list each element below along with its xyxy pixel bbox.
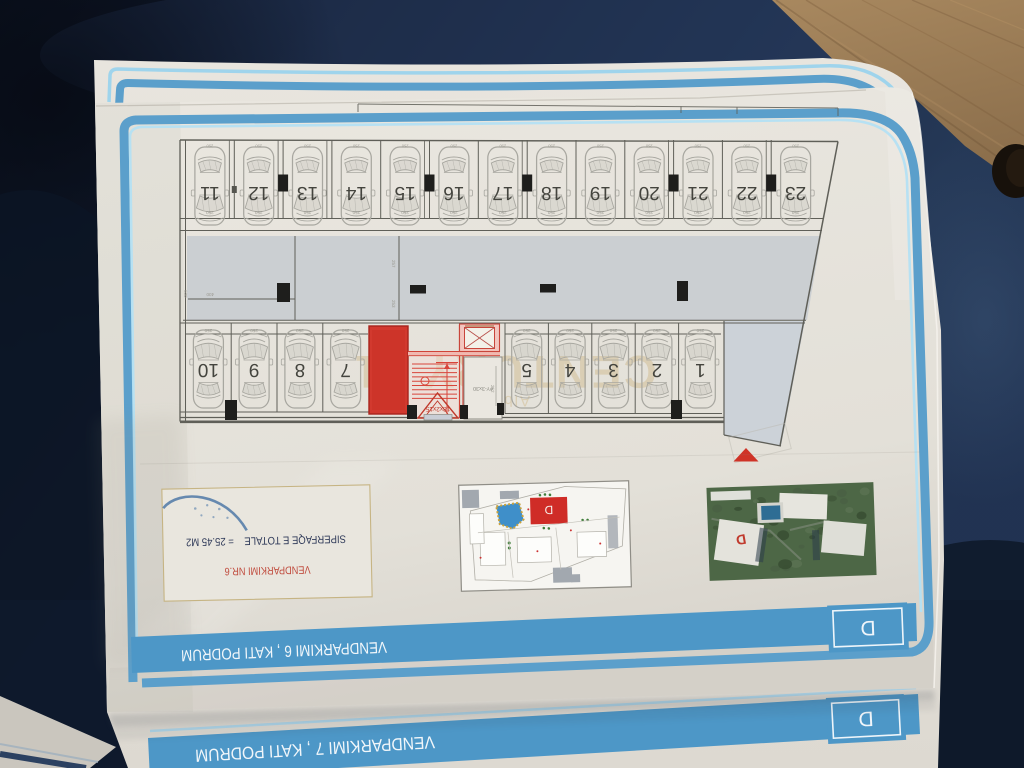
svg-text:1: 1 [695, 359, 706, 380]
svg-text:250: 250 [401, 210, 409, 215]
svg-text:250: 250 [450, 144, 457, 149]
svg-text:252: 252 [490, 385, 495, 393]
svg-text:5: 5 [521, 359, 532, 380]
svg-text:#Y-3x30: #Y-3x30 [473, 385, 493, 391]
svg-text:15: 15 [395, 182, 416, 203]
svg-text:250: 250 [694, 144, 701, 149]
svg-text:250: 250 [204, 328, 212, 333]
svg-text:8: 8 [295, 359, 306, 380]
svg-text:257: 257 [391, 260, 396, 268]
svg-text:250: 250 [645, 144, 652, 149]
svg-text:16: 16 [443, 182, 464, 203]
svg-text:250: 250 [206, 210, 214, 215]
svg-text:23: 23 [785, 182, 806, 203]
svg-text:4: 4 [564, 359, 575, 380]
svg-text:13: 13 [297, 182, 318, 203]
svg-text:14: 14 [345, 182, 367, 203]
svg-text:3: 3 [608, 359, 619, 380]
svg-text:250: 250 [352, 210, 360, 215]
svg-text:7: 7 [340, 359, 351, 380]
svg-text:250: 250 [566, 328, 574, 333]
svg-text:250: 250 [596, 210, 604, 215]
svg-text:21: 21 [687, 182, 708, 203]
svg-text:2: 2 [652, 359, 663, 380]
svg-text:18x2x15: 18x2x15 [425, 405, 450, 412]
svg-text:250: 250 [791, 210, 799, 215]
svg-text:250: 250 [694, 210, 702, 215]
svg-text:9: 9 [249, 359, 260, 380]
svg-text:12: 12 [248, 182, 269, 203]
svg-text:17: 17 [492, 182, 513, 203]
svg-text:VENDPARKIMI NR.6: VENDPARKIMI NR.6 [224, 563, 310, 577]
svg-text:250: 250 [254, 210, 262, 215]
svg-text:250: 250 [499, 210, 507, 215]
svg-text:11: 11 [200, 182, 220, 203]
svg-text:600: 600 [183, 290, 188, 298]
svg-text:250: 250 [547, 144, 554, 149]
svg-text:10: 10 [198, 359, 219, 380]
svg-text:250: 250 [791, 144, 798, 149]
svg-text:250: 250 [743, 144, 750, 149]
svg-text:250: 250 [206, 144, 213, 149]
svg-text:250: 250 [743, 210, 751, 215]
svg-text:250: 250 [696, 328, 704, 333]
svg-text:250: 250 [499, 144, 506, 149]
svg-text:D: D [860, 616, 876, 640]
svg-text:250: 250 [303, 210, 311, 215]
svg-text:250: 250 [250, 328, 258, 333]
svg-text:250: 250 [352, 144, 359, 149]
svg-text:250: 250 [303, 144, 310, 149]
svg-text:250: 250 [653, 328, 661, 333]
svg-text:19: 19 [590, 182, 611, 203]
svg-text:18: 18 [541, 182, 562, 203]
svg-text:250: 250 [255, 144, 262, 149]
svg-text:250: 250 [609, 328, 617, 333]
svg-text:D: D [544, 503, 553, 517]
svg-text:250: 250 [341, 328, 349, 333]
svg-text:253: 253 [391, 300, 396, 308]
svg-text:20: 20 [639, 182, 660, 203]
svg-text:22: 22 [736, 182, 757, 203]
svg-text:250: 250 [645, 210, 653, 215]
svg-text:250: 250 [596, 144, 603, 149]
svg-text:250: 250 [522, 328, 530, 333]
svg-text:250: 250 [401, 144, 408, 149]
svg-text:400: 400 [206, 292, 214, 297]
svg-text:250: 250 [547, 210, 555, 215]
svg-text:250: 250 [296, 328, 304, 333]
svg-text:250: 250 [450, 210, 458, 215]
